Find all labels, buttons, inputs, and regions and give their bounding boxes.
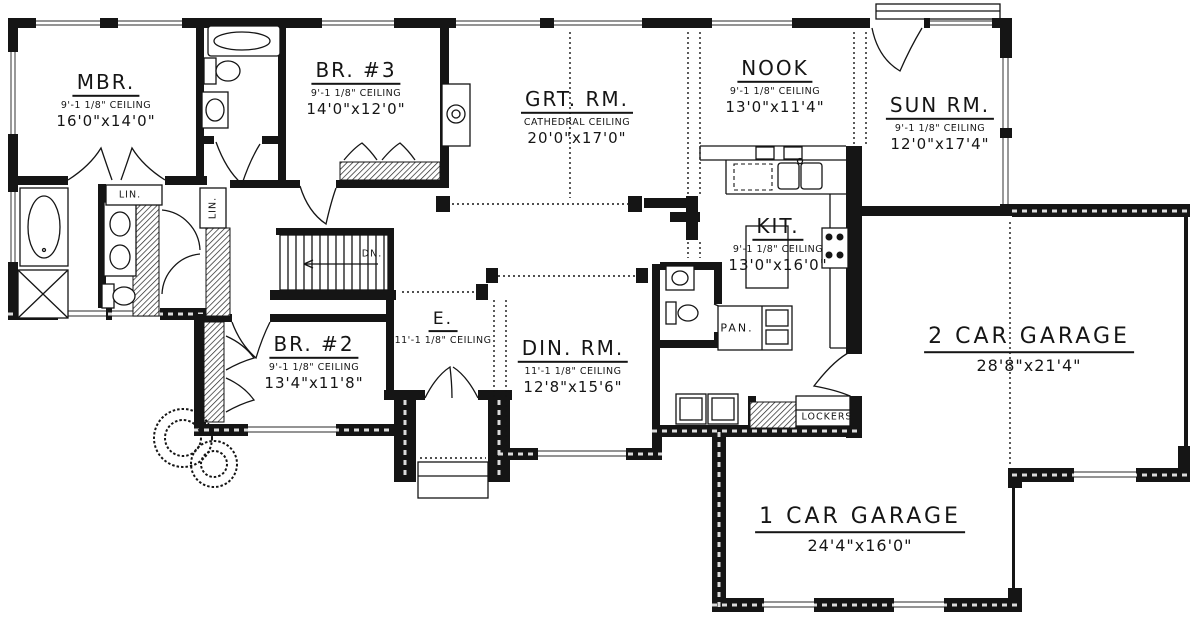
room-title: BR. #2 (269, 332, 358, 359)
room-label-garage1: 1 CAR GARAGE 24'4"x16'0" (755, 504, 965, 556)
room-label-nook: NOOK 9'-1 1/8" CEILING 13'0"x11'4" (725, 56, 824, 116)
room-size: 14'0"x12'0" (306, 100, 405, 118)
room-label-mbr: MBR. 9'-1 1/8" CEILING 16'0"x14'0" (56, 70, 155, 130)
room-label-kit: KIT. 9'-1 1/8" CEILING 13'0"x16'0" (728, 214, 827, 274)
room-title: NOOK (737, 56, 813, 83)
ceiling-height: 9'-1 1/8" CEILING (733, 244, 823, 255)
linen-label: LIN. (119, 190, 141, 201)
ceiling-height: 11'-1 1/8" CEILING (395, 336, 492, 347)
room-size: 12'0"x17'4" (890, 135, 989, 153)
room-label-br3: BR. #3 9'-1 1/8" CEILING 14'0"x12'0" (306, 58, 405, 118)
room-size: 13'4"x11'8" (264, 374, 363, 392)
room-title: DIN. RM. (518, 336, 628, 363)
linen-label-2: LIN. (208, 197, 219, 219)
ceiling-height: 9'-1 1/8" CEILING (730, 86, 820, 97)
stairs (280, 235, 388, 290)
lockers-label: LOCKERS (802, 412, 853, 423)
room-title: E. (429, 309, 457, 332)
room-label-din: DIN. RM. 11'-1 1/8" CEILING 12'8"x15'6" (518, 336, 628, 396)
room-label-sun: SUN RM. 9'-1 1/8" CEILING 12'0"x17'4" (886, 93, 994, 153)
powder-bath (666, 266, 698, 324)
shower-icon (18, 270, 68, 318)
room-label-garage2: 2 CAR GARAGE 28'8"x21'4" (924, 324, 1134, 376)
laundry (676, 394, 738, 424)
room-size: 16'0"x14'0" (56, 112, 155, 130)
fireplace-icon (442, 84, 470, 146)
room-label-br2: BR. #2 9'-1 1/8" CEILING 13'4"x11'8" (264, 332, 363, 392)
room-title: 2 CAR GARAGE (924, 324, 1134, 353)
room-size: 13'0"x16'0" (728, 256, 827, 274)
kitchen-sink-icon (778, 159, 822, 190)
dishwasher-icon (734, 164, 772, 190)
porch-stoop (418, 462, 488, 498)
sink-icon (202, 92, 228, 128)
stairs-down-label: DN. (362, 249, 382, 260)
room-size: 28'8"x21'4" (976, 357, 1081, 376)
room-title: BR. #3 (311, 58, 400, 85)
ceiling-height: 9'-1 1/8" CEILING (895, 123, 985, 134)
room-size: 20'0"x17'0" (527, 129, 626, 147)
ceiling-height: CATHEDRAL CEILING (524, 117, 630, 128)
toilet-icon (102, 284, 135, 308)
room-label-grt: GRT. RM. CATHEDRAL CEILING 20'0"x17'0" (521, 87, 633, 147)
ceiling-height: 11'-1 1/8" CEILING (525, 366, 622, 377)
room-label-entry: E. 11'-1 1/8" CEILING (395, 309, 492, 347)
double-vanity-icon (104, 202, 136, 276)
sun-room-bay (876, 4, 1000, 19)
room-title: SUN RM. (886, 93, 994, 120)
master-bath (18, 185, 226, 318)
floor-plan-page: MBR. 9'-1 1/8" CEILING 16'0"x14'0" BR. #… (0, 0, 1200, 631)
ceiling-height: 9'-1 1/8" CEILING (61, 100, 151, 111)
room-size: 12'8"x15'6" (523, 378, 622, 396)
room-title: 1 CAR GARAGE (755, 504, 965, 533)
hall-bath (202, 26, 280, 128)
dryer-icon (708, 394, 738, 424)
ceiling-height: 9'-1 1/8" CEILING (311, 88, 401, 99)
room-title: KIT. (752, 214, 803, 241)
toilet-icon (204, 58, 240, 84)
toilet-icon (666, 302, 698, 324)
stairs-down-arrow (304, 260, 378, 268)
bathtub-icon (20, 188, 68, 266)
room-title: MBR. (73, 70, 140, 97)
pantry-label: PAN. (720, 322, 753, 335)
ceiling-height: 9'-1 1/8" CEILING (269, 362, 359, 373)
room-size: 13'0"x11'4" (725, 98, 824, 116)
bathtub-icon (208, 26, 280, 56)
room-title: GRT. RM. (521, 87, 633, 114)
washer-icon (676, 394, 706, 424)
sink-icon (666, 266, 694, 290)
room-size: 24'4"x16'0" (807, 537, 912, 556)
